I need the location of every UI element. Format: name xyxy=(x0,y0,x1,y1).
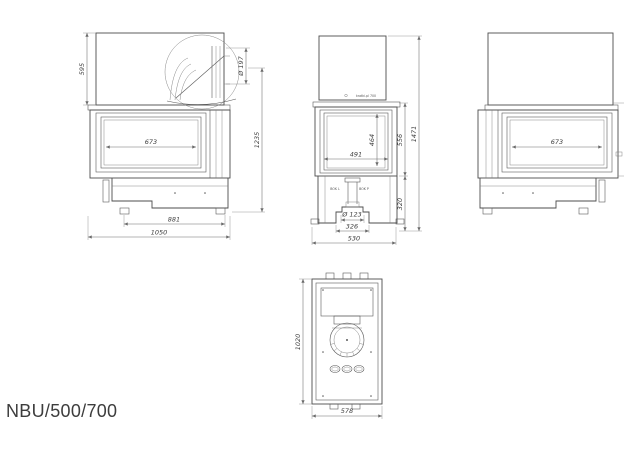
front-view: kratki.pl 700 BOK L BOK P 464 xyxy=(311,36,422,245)
dim-label: Ø 197 xyxy=(237,55,245,76)
glass-frame xyxy=(320,110,392,173)
base-outline xyxy=(103,178,228,214)
dim-label: 1471 xyxy=(410,126,418,143)
edge-extension-lines xyxy=(613,103,624,176)
side-view-left: 595 Ø 197 673 1235 881 1050 xyxy=(78,33,265,240)
dim-label: 595 xyxy=(78,63,86,75)
flue-tick-marks xyxy=(331,343,364,357)
foot-left xyxy=(483,208,492,214)
dim-label: 578 xyxy=(341,407,353,415)
side-bracket xyxy=(616,152,622,156)
dim-label: 1050 xyxy=(151,229,168,237)
technical-drawing-page: 595 Ø 197 673 1235 881 1050 xyxy=(0,0,624,460)
drawing-canvas: 595 Ø 197 673 1235 881 1050 xyxy=(0,0,624,460)
flue-detail-circle xyxy=(165,35,239,109)
dim-base-height: 320 xyxy=(396,176,422,231)
dim-label: 491 xyxy=(350,151,362,159)
dim-hood-height: 595 xyxy=(78,33,96,105)
side-view-right: 673 xyxy=(478,33,624,214)
corner-post-lines xyxy=(486,110,498,178)
hood-outline xyxy=(319,36,386,100)
flue-collar-lines xyxy=(212,46,224,98)
dim-label: Ø 123 xyxy=(341,211,362,219)
dim-body-height: 1235 xyxy=(232,68,265,212)
upper-panel xyxy=(321,288,373,316)
duct-label-right: BOK P xyxy=(359,187,369,191)
model-title: NBU/500/700 xyxy=(6,401,117,421)
corner-post-lines xyxy=(210,110,222,178)
dim-label: 1020 xyxy=(294,334,302,351)
dim-total-depth: 1050 xyxy=(88,216,230,240)
dim-label: 530 xyxy=(348,235,360,243)
dim-label: 673 xyxy=(145,138,157,146)
screw-dots xyxy=(322,289,372,397)
air-duct-top xyxy=(345,178,360,182)
dim-width: 578 xyxy=(312,406,382,419)
firebox-top-band xyxy=(88,105,230,110)
dim-label: 1235 xyxy=(253,132,261,149)
foot-left xyxy=(120,208,129,214)
brand-logo: kratki.pl 700 xyxy=(345,94,376,98)
dim-glass-width-left: 673 xyxy=(106,138,196,147)
mount-tabs-top xyxy=(326,273,368,279)
duct-label-left: BOK L xyxy=(330,187,340,191)
foot-right xyxy=(579,208,588,214)
base-outline xyxy=(480,178,605,214)
top-view: 1020 578 xyxy=(294,273,382,419)
firebox-top-band xyxy=(313,102,400,107)
hood-outline xyxy=(96,33,224,105)
dim-label: 326 xyxy=(346,223,358,231)
flue-outlet-circle xyxy=(330,323,364,357)
brand-logo-icon xyxy=(345,94,348,97)
dim-glass-height: 464 xyxy=(368,114,377,166)
dim-depth: 1020 xyxy=(294,279,312,404)
damper-blade xyxy=(176,56,224,98)
dim-base-width: 881 xyxy=(124,215,225,227)
firebox-top-band xyxy=(485,105,618,110)
inner-wall xyxy=(316,283,378,400)
dim-glass-width-front: 491 xyxy=(324,151,388,160)
firebox-outline xyxy=(315,107,397,176)
dim-label: 556 xyxy=(396,134,404,146)
vent-ovals xyxy=(330,366,364,373)
dim-flue-diameter: Ø 197 xyxy=(226,48,250,84)
dim-inlet-frame-width: 326 xyxy=(336,223,369,234)
dim-air-inlet: Ø 123 xyxy=(341,211,364,224)
dim-label: 464 xyxy=(368,134,376,146)
dim-firebox-height: 556 xyxy=(396,103,408,176)
dim-label: 673 xyxy=(551,138,563,146)
dim-label: 881 xyxy=(168,216,180,224)
foot-right xyxy=(216,208,225,214)
dim-label: 320 xyxy=(396,198,404,210)
hood-outline xyxy=(488,33,613,105)
dim-glass-width-right: 673 xyxy=(512,138,602,147)
body-outline xyxy=(312,279,382,404)
brand-logo-text: kratki.pl 700 xyxy=(356,94,376,98)
damper-detail-curves xyxy=(167,56,236,105)
